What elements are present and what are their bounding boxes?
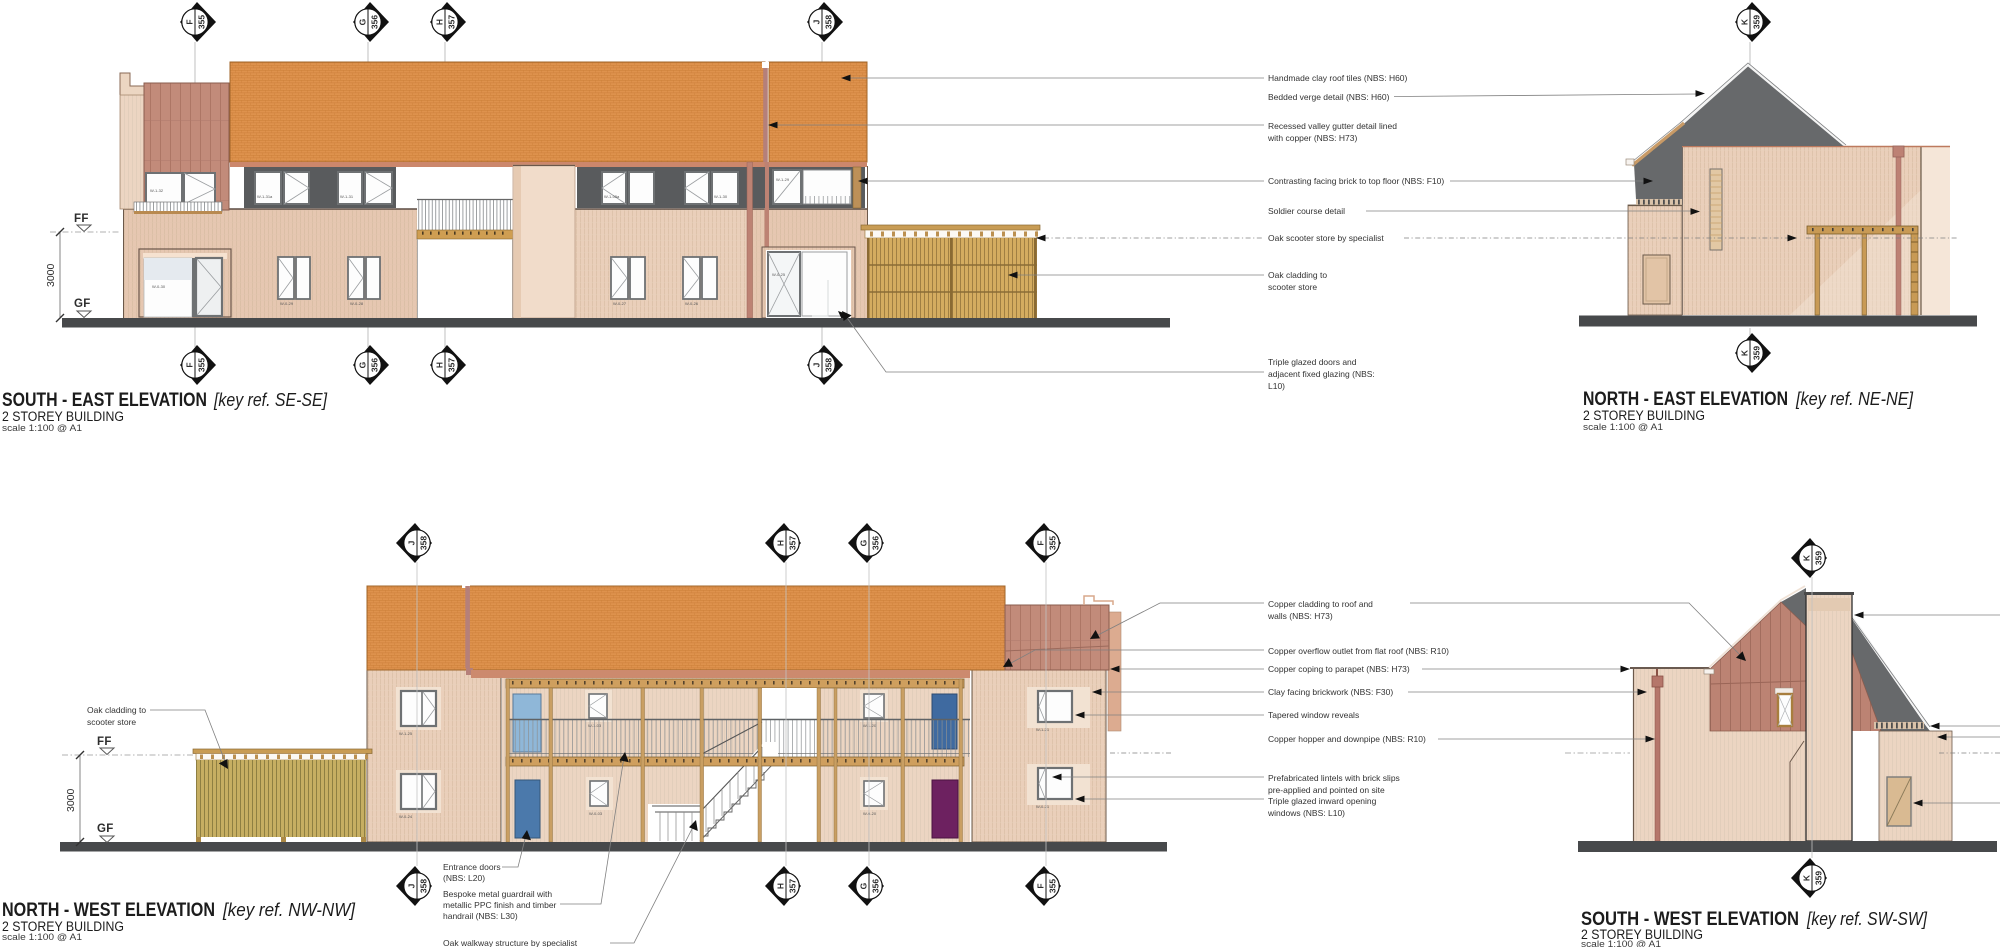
svg-text:Copper coping to parapet (NBS:: Copper coping to parapet (NBS: H73) <box>1268 664 1410 674</box>
svg-text:3000: 3000 <box>65 788 77 812</box>
svg-text:Handmade clay roof tiles (NBS:: Handmade clay roof tiles (NBS: H60) <box>1268 73 1408 83</box>
svg-text:W-0-24: W-0-24 <box>399 814 413 819</box>
svg-text:Oak walkway structure by speci: Oak walkway structure by specialist <box>443 938 578 947</box>
svg-text:windows (NBS: L10): windows (NBS: L10) <box>1267 808 1345 818</box>
svg-text:Triple glazed doors and: Triple glazed doors and <box>1268 357 1357 367</box>
svg-text:adjacent fixed glazing (NBS:: adjacent fixed glazing (NBS: <box>1268 369 1375 379</box>
svg-text:H: H <box>776 883 786 889</box>
svg-text:355: 355 <box>197 15 207 29</box>
svg-text:J: J <box>812 19 822 24</box>
svg-text:Contrasting facing brick to to: Contrasting facing brick to top floor (N… <box>1268 176 1444 186</box>
svg-text:G: G <box>859 539 869 546</box>
svg-text:W-1-25: W-1-25 <box>399 731 413 736</box>
svg-text:scale 1:100 @ A1: scale 1:100 @ A1 <box>1583 422 1663 432</box>
svg-text:K: K <box>1740 18 1750 25</box>
svg-text:with copper (NBS: H73): with copper (NBS: H73) <box>1267 133 1357 143</box>
svg-text:W-1-30: W-1-30 <box>714 194 728 199</box>
svg-text:359: 359 <box>1814 871 1824 885</box>
svg-text:W-0-26: W-0-26 <box>685 301 699 306</box>
svg-text:F: F <box>1036 883 1046 888</box>
svg-text:Oak cladding to: Oak cladding to <box>87 705 146 715</box>
svg-text:Bespoke metal guardrail with: Bespoke metal guardrail with <box>443 889 552 899</box>
svg-text:W-0-29: W-0-29 <box>280 301 294 306</box>
svg-text:Recessed valley gutter detail: Recessed valley gutter detail lined <box>1268 121 1397 131</box>
svg-text:W-1-29: W-1-29 <box>776 177 790 182</box>
svg-text:359: 359 <box>1814 551 1824 565</box>
svg-text:W-0-28: W-0-28 <box>350 301 364 306</box>
svg-text:355: 355 <box>1048 536 1058 550</box>
svg-text:356: 356 <box>871 536 881 550</box>
svg-text:[key ref. SE-SE]: [key ref. SE-SE] <box>213 390 328 410</box>
svg-text:W-0-20: W-0-20 <box>863 811 877 816</box>
svg-text:FF: FF <box>97 736 112 748</box>
svg-text:2 STOREY BUILDING: 2 STOREY BUILDING <box>1583 408 1705 423</box>
svg-text:scooter store: scooter store <box>1268 282 1317 292</box>
svg-text:W-1-05a: W-1-05a <box>604 194 620 199</box>
svg-text:F: F <box>185 19 195 24</box>
svg-text:W-0-25: W-0-25 <box>772 272 786 277</box>
svg-text:K: K <box>1740 349 1750 356</box>
svg-text:F: F <box>1036 540 1046 545</box>
svg-text:357: 357 <box>788 879 798 893</box>
svg-text:W-0-30: W-0-30 <box>152 284 166 289</box>
svg-text:W-0-27: W-0-27 <box>613 301 627 306</box>
svg-text:G: G <box>358 361 368 368</box>
svg-text:356: 356 <box>370 358 380 372</box>
svg-text:Tapered window reveals: Tapered window reveals <box>1268 710 1359 720</box>
svg-text:H: H <box>435 362 445 368</box>
svg-text:3000: 3000 <box>45 263 57 287</box>
svg-text:358: 358 <box>419 879 429 893</box>
svg-text:W-1-31a: W-1-31a <box>257 194 273 199</box>
svg-text:Entrance doors: Entrance doors <box>443 862 501 872</box>
svg-text:handrail (NBS: L30): handrail (NBS: L30) <box>443 911 518 921</box>
svg-text:Triple glazed inward opening: Triple glazed inward opening <box>1268 796 1377 806</box>
svg-text:scale 1:100 @ A1: scale 1:100 @ A1 <box>2 423 82 433</box>
svg-text:357: 357 <box>447 15 457 29</box>
svg-text:H: H <box>435 19 445 25</box>
svg-text:K: K <box>1802 554 1812 561</box>
svg-text:GF: GF <box>97 823 114 835</box>
svg-text:W-0-03: W-0-03 <box>589 811 603 816</box>
svg-text:J: J <box>407 540 417 545</box>
svg-text:Oak scooter store by specialis: Oak scooter store by specialist <box>1268 233 1384 243</box>
svg-text:NORTH - WEST ELEVATION: NORTH - WEST ELEVATION <box>2 900 215 921</box>
svg-text:H: H <box>776 540 786 546</box>
svg-text:358: 358 <box>824 358 834 372</box>
svg-text:Copper cladding to roof and: Copper cladding to roof and <box>1268 599 1373 609</box>
svg-text:pre-applied and pointed on sit: pre-applied and pointed on site <box>1268 785 1385 795</box>
svg-text:J: J <box>407 883 417 888</box>
svg-text:G: G <box>358 18 368 25</box>
svg-text:scale 1:100 @ A1: scale 1:100 @ A1 <box>1581 939 1661 947</box>
svg-text:355: 355 <box>197 358 207 372</box>
svg-text:Oak cladding to: Oak cladding to <box>1268 270 1327 280</box>
svg-text:Clay facing brickwork (NBS: F3: Clay facing brickwork (NBS: F30) <box>1268 687 1393 697</box>
svg-text:W-1-31: W-1-31 <box>340 194 354 199</box>
svg-text:357: 357 <box>447 358 457 372</box>
svg-text:F: F <box>185 362 195 367</box>
svg-text:J: J <box>812 362 822 367</box>
svg-text:GF: GF <box>74 298 91 310</box>
svg-text:355: 355 <box>1048 879 1058 893</box>
svg-text:Bedded verge detail (NBS: H60): Bedded verge detail (NBS: H60) <box>1268 92 1390 102</box>
svg-text:356: 356 <box>871 879 881 893</box>
svg-text:SOUTH - EAST ELEVATION: SOUTH - EAST ELEVATION <box>2 390 207 411</box>
svg-text:G: G <box>859 882 869 889</box>
svg-text:359: 359 <box>1752 15 1762 29</box>
svg-text:metallic PPC finish and timber: metallic PPC finish and timber <box>443 900 557 910</box>
svg-text:359: 359 <box>1752 346 1762 360</box>
svg-text:356: 356 <box>370 15 380 29</box>
svg-text:358: 358 <box>419 536 429 550</box>
svg-text:[key ref. NE-NE]: [key ref. NE-NE] <box>1795 389 1914 409</box>
svg-text:2 STOREY BUILDING: 2 STOREY BUILDING <box>2 409 124 424</box>
svg-text:L10): L10) <box>1268 381 1285 391</box>
svg-text:walls (NBS: H73): walls (NBS: H73) <box>1267 611 1333 621</box>
svg-text:NORTH - EAST ELEVATION: NORTH - EAST ELEVATION <box>1583 389 1788 410</box>
svg-text:[key ref. NW-NW]: [key ref. NW-NW] <box>222 900 356 920</box>
svg-text:358: 358 <box>824 15 834 29</box>
svg-text:scooter store: scooter store <box>87 717 136 727</box>
svg-text:FF: FF <box>74 213 89 225</box>
svg-text:W-1-32: W-1-32 <box>150 188 164 193</box>
svg-text:W-1-21: W-1-21 <box>1036 727 1050 732</box>
svg-text:Copper overflow outlet from fl: Copper overflow outlet from flat roof (N… <box>1268 646 1449 656</box>
svg-text:(NBS: L20): (NBS: L20) <box>443 873 485 883</box>
svg-text:K: K <box>1802 874 1812 881</box>
svg-text:scale 1:100 @ A1: scale 1:100 @ A1 <box>2 932 82 942</box>
svg-text:Prefabricated lintels with bri: Prefabricated lintels with brick slips <box>1268 773 1400 783</box>
svg-text:[key ref. SW-SW]: [key ref. SW-SW] <box>1806 909 1928 929</box>
svg-text:357: 357 <box>788 536 798 550</box>
svg-text:Copper hopper and downpipe (NB: Copper hopper and downpipe (NBS: R10) <box>1268 734 1426 744</box>
svg-text:W-0-21: W-0-21 <box>1036 804 1050 809</box>
svg-text:Soldier course detail: Soldier course detail <box>1268 206 1345 216</box>
